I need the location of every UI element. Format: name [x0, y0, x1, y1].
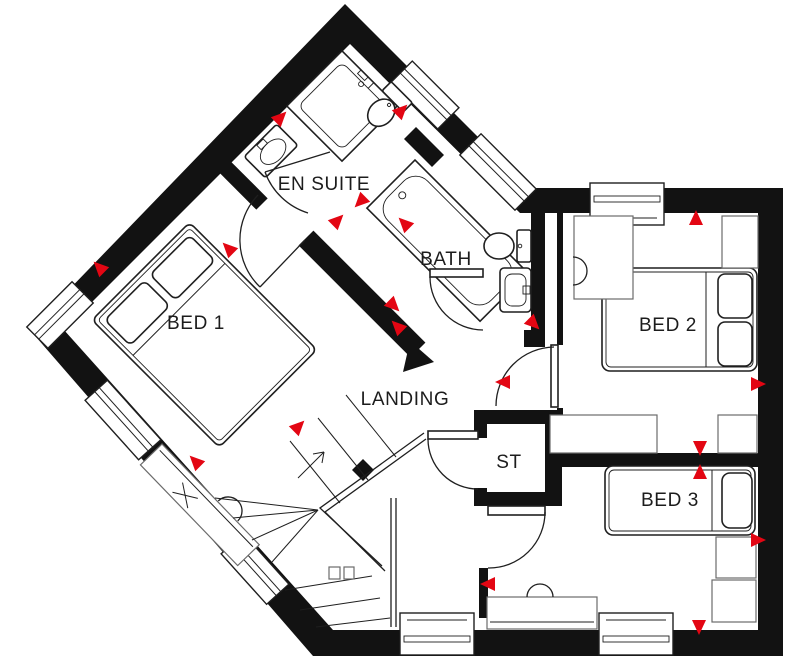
room-label-store: ST	[496, 452, 521, 473]
floor-plan: BED 1 EN SUITE BATH LANDING ST BED 2 BED…	[0, 0, 794, 670]
window-icon	[85, 380, 161, 460]
room-label-bed2: BED 2	[639, 315, 697, 336]
wardrobe-icon	[574, 216, 633, 299]
wardrobe-icon	[722, 216, 758, 268]
dimension-marker-icon	[289, 416, 310, 437]
window-icon	[460, 134, 536, 210]
window-icon	[599, 613, 673, 655]
door-bed1	[240, 195, 305, 287]
desk-icon	[140, 434, 270, 566]
toilet-icon	[484, 230, 531, 262]
room-label-bed3: BED 3	[641, 490, 699, 511]
wardrobe-icon	[712, 580, 756, 622]
wardrobe-icon	[718, 415, 757, 453]
room-label-bath: BATH	[420, 249, 472, 270]
bed1-furniture	[92, 222, 317, 565]
wardrobe-icon	[716, 537, 756, 578]
room-label-bed1: BED 1	[167, 313, 225, 334]
window-icon	[400, 613, 474, 655]
floor-plan-page: BED 1 EN SUITE BATH LANDING ST BED 2 BED…	[0, 0, 794, 670]
wardrobe-icon	[550, 415, 657, 453]
basin-icon	[500, 268, 531, 312]
room-label-ensuite: EN SUITE	[278, 174, 370, 195]
handrail	[320, 433, 426, 627]
staircase	[215, 395, 426, 627]
desk-icon	[487, 584, 597, 629]
door-bed2	[496, 345, 558, 407]
dimension-marker-icon	[495, 375, 510, 389]
door-bed3	[488, 506, 545, 568]
stair-detail	[344, 567, 354, 579]
stair-detail	[329, 567, 340, 579]
dimension-marker-icon	[328, 210, 349, 231]
room-label-landing: LANDING	[361, 389, 450, 410]
